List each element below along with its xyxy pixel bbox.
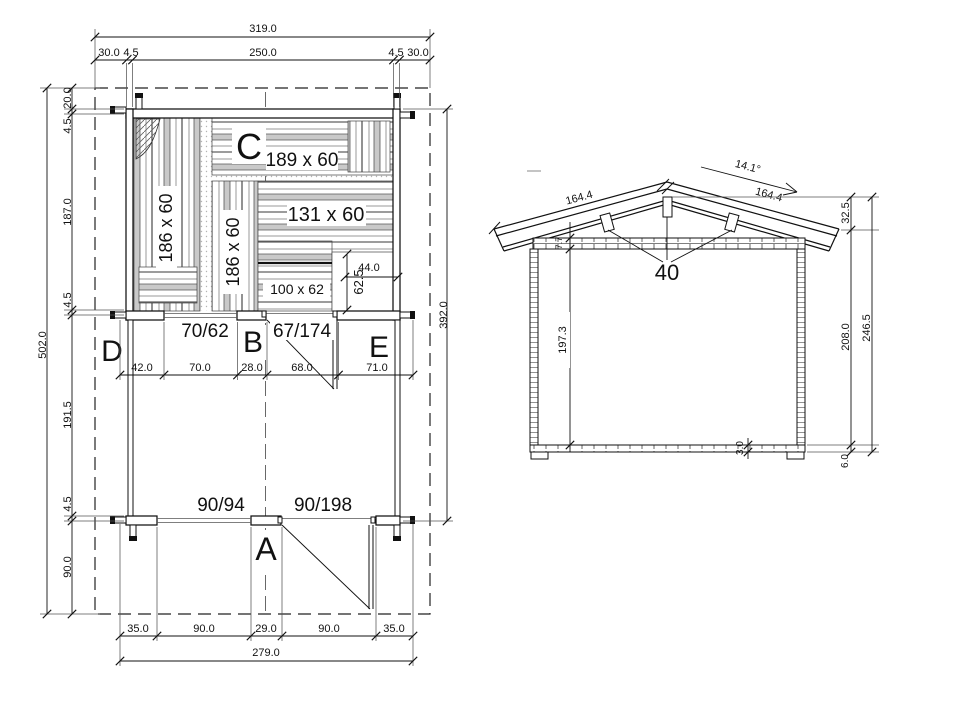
dim-top-seg0: 30.0: [98, 47, 119, 59]
letter-b: B: [243, 326, 263, 359]
dim-top-seg1: 4.5: [123, 47, 138, 59]
drawing-canvas: 186 x 60 186 x 60 C 189 x 60 131 x 60 10…: [0, 0, 958, 716]
dim-bot-seg0: 35.0: [127, 623, 148, 635]
dim-left-seg5: 4.5: [62, 496, 74, 511]
window-bottom-label: 90/94: [197, 495, 245, 516]
dim-left-seg2: 187.0: [62, 198, 74, 226]
panel-left-vertical-label: 186 x 60: [156, 193, 176, 262]
dim-top-seg3: 4.5: [388, 47, 403, 59]
letter-a: A: [255, 531, 277, 567]
technical-drawing-page: 186 x 60 186 x 60 C 189 x 60 131 x 60 10…: [0, 0, 958, 716]
elevation-right-dimensions: 32.5 208.0 6.0 246.5: [672, 193, 879, 468]
floor-plan: 186 x 60 186 x 60 C 189 x 60 131 x 60 10…: [37, 23, 453, 666]
side-elevation: 40 14.1° 164.4 164.4 7.7 197.3: [489, 158, 879, 468]
door-bottom-label: 90/198: [294, 495, 352, 516]
dim-top-seg2: 250.0: [249, 47, 277, 59]
dim-left-seg3: 4.5: [62, 292, 74, 307]
dim-plan-bottom-total: 279.0: [252, 647, 280, 659]
panel-bottom-horizontal-label: 100 x 62: [270, 281, 324, 297]
dim-mid-seg3: 68.0: [291, 362, 312, 374]
dim-mid-seg2: 28.0: [241, 362, 262, 374]
letter-e: E: [369, 331, 389, 364]
dim-bot-seg1: 90.0: [193, 623, 214, 635]
panel-top-horizontal-label: 189 x 60: [266, 150, 339, 171]
dim-top-seg4: 30.0: [407, 47, 428, 59]
letter-c: C: [236, 126, 262, 167]
cutout-height-label: 62.5: [351, 269, 366, 294]
dim-mid-seg4: 71.0: [366, 362, 387, 374]
dim-left-seg6: 90.0: [62, 556, 74, 577]
panel-center-vertical-label: 186 x 60: [223, 217, 243, 286]
base-height-label: 6.0: [840, 454, 851, 468]
dim-plan-right-height: 392.0: [438, 301, 450, 329]
floor-thickness-label: 3.0: [735, 441, 746, 455]
dim-plan-total-height: 502.0: [37, 331, 49, 359]
inner-height-label: 197.3: [557, 326, 569, 354]
ridge-height-label: 32.5: [840, 202, 852, 223]
dim-bot-seg4: 35.0: [383, 623, 404, 635]
letter-d: D: [101, 335, 123, 368]
room-labels: 70/62 67/174 B D E 90/94 90/198 A: [101, 320, 389, 567]
rafter-right-label: 164.4: [754, 186, 784, 205]
bracket-count-label: 40: [655, 260, 679, 285]
dim-left-seg4: 191.5: [62, 401, 74, 429]
panel-right-horizontal-label: 131 x 60: [288, 204, 365, 226]
wall-height-label: 208.0: [840, 323, 852, 351]
dim-plan-total-width: 319.0: [249, 23, 277, 35]
dim-left-seg1: 4.5: [62, 118, 74, 133]
dim-bot-seg2: 29.0: [255, 623, 276, 635]
rafter-left-label: 164.4: [564, 189, 594, 208]
total-height-label: 246.5: [861, 314, 873, 342]
dim-mid-seg1: 70.0: [189, 362, 210, 374]
dim-left-seg0: 20.0: [62, 87, 74, 108]
dim-bot-seg3: 90.0: [318, 623, 339, 635]
door-mid-label: 67/174: [273, 321, 332, 342]
door-bottom: [278, 517, 375, 609]
roof-angle-label: 14.1°: [734, 158, 762, 176]
elevation-inner-dimensions: 7.7 197.3 3.0: [553, 222, 752, 459]
roof-thickness-label: 7.7: [554, 237, 564, 250]
dim-mid-seg0: 42.0: [131, 362, 152, 374]
window-mid-label: 70/62: [181, 321, 229, 342]
